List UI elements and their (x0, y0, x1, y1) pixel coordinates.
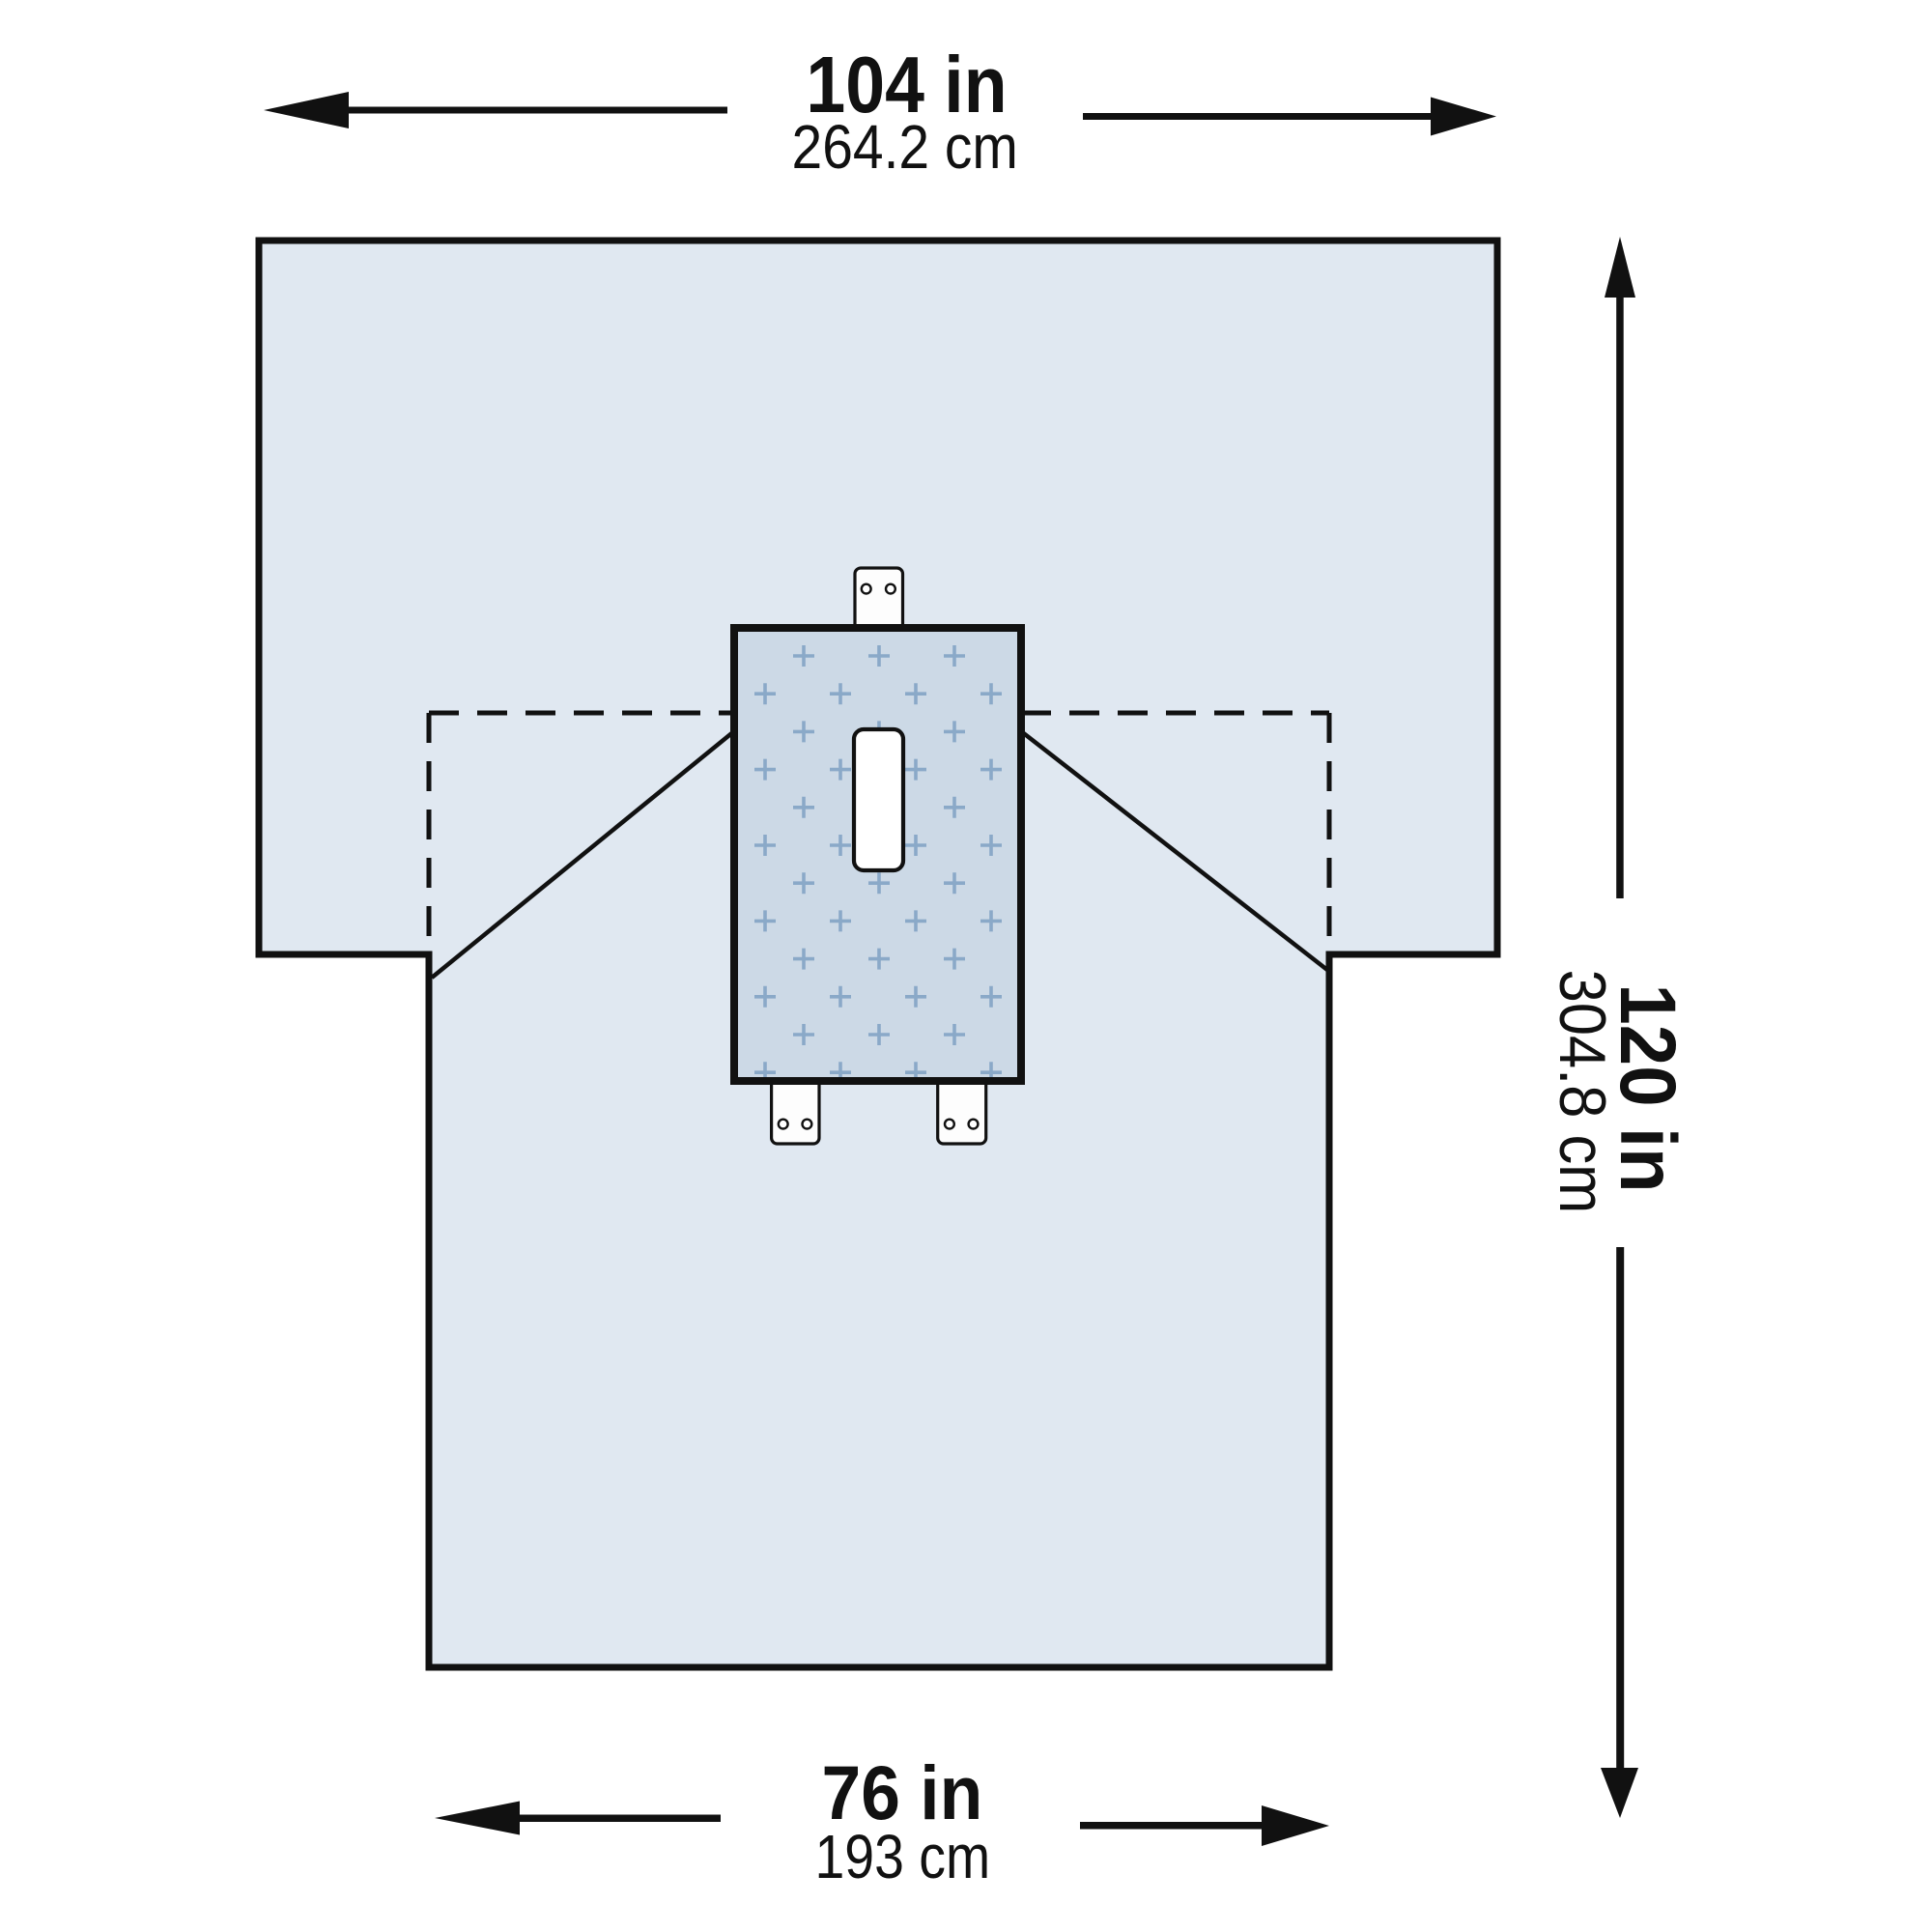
svg-text:304.8 cm: 304.8 cm (1546, 970, 1620, 1214)
svg-text:264.2 cm: 264.2 cm (792, 112, 1018, 182)
svg-text:193 cm: 193 cm (815, 1822, 991, 1891)
